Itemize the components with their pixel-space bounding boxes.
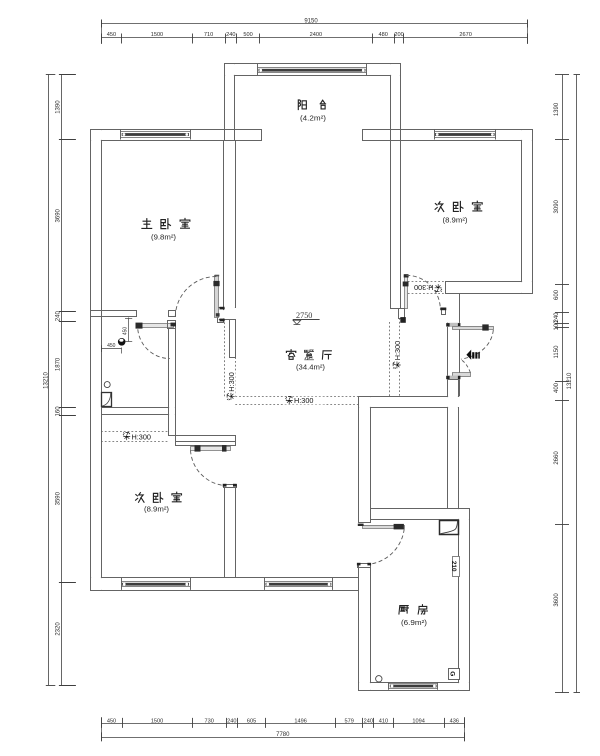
svg-text:210: 210 [450,561,457,572]
svg-text:1500: 1500 [151,719,163,725]
svg-text:450: 450 [107,32,116,38]
svg-text:(8.9m²): (8.9m²) [443,216,468,225]
svg-text:(8.9m²): (8.9m²) [144,505,169,514]
svg-text:H:300: H:300 [294,396,313,405]
svg-text:1496: 1496 [294,719,306,725]
svg-text:1150: 1150 [554,345,560,359]
svg-text:240: 240 [226,32,235,38]
svg-text:H:300: H:300 [227,372,236,391]
svg-text:500: 500 [243,32,252,38]
svg-text:3690: 3690 [56,208,62,222]
svg-text:240: 240 [227,719,236,725]
svg-text:3090: 3090 [554,199,560,213]
svg-text:(6.9m²): (6.9m²) [401,618,427,627]
svg-text:13210: 13210 [567,372,573,389]
svg-text:200: 200 [394,32,403,38]
svg-text:(34.4m²): (34.4m²) [296,362,325,371]
svg-text:3600: 3600 [554,593,560,607]
svg-text:1870: 1870 [56,357,62,371]
svg-text:13210: 13210 [44,371,50,388]
svg-text:480: 480 [379,32,388,38]
svg-text:G: G [449,671,456,676]
svg-text:9150: 9150 [304,18,318,24]
svg-text:410: 410 [379,719,388,725]
svg-text:100: 100 [554,320,560,331]
svg-text:3590: 3590 [56,491,62,505]
svg-text:450: 450 [107,719,116,725]
svg-text:240: 240 [364,719,373,725]
svg-text:400: 400 [554,382,560,393]
svg-text:2400: 2400 [310,32,322,38]
svg-text:2670: 2670 [459,32,471,38]
svg-text:2750: 2750 [296,311,312,320]
svg-text:7780: 7780 [276,732,290,738]
svg-text:730: 730 [204,719,213,725]
svg-text:H:300: H:300 [393,341,402,360]
svg-text:H:300: H:300 [132,433,151,442]
svg-text:1390: 1390 [56,100,62,114]
svg-text:1500: 1500 [151,32,163,38]
svg-text:579: 579 [344,719,353,725]
svg-text:240: 240 [56,311,62,322]
svg-text:(4.2m²): (4.2m²) [300,113,326,122]
svg-text:2320: 2320 [56,622,62,636]
svg-text:160: 160 [56,406,62,417]
svg-text:600: 600 [554,289,560,300]
svg-text:2660: 2660 [554,451,560,465]
svg-text:710: 710 [204,32,213,38]
svg-text:450: 450 [107,343,116,349]
svg-text:605: 605 [247,719,256,725]
svg-text:1390: 1390 [554,102,560,116]
svg-text:(9.8m²): (9.8m²) [151,233,176,242]
svg-text:1094: 1094 [412,719,424,725]
svg-text:450: 450 [122,327,128,336]
svg-text:H:300: H:300 [414,283,433,292]
svg-text:436: 436 [450,719,459,725]
